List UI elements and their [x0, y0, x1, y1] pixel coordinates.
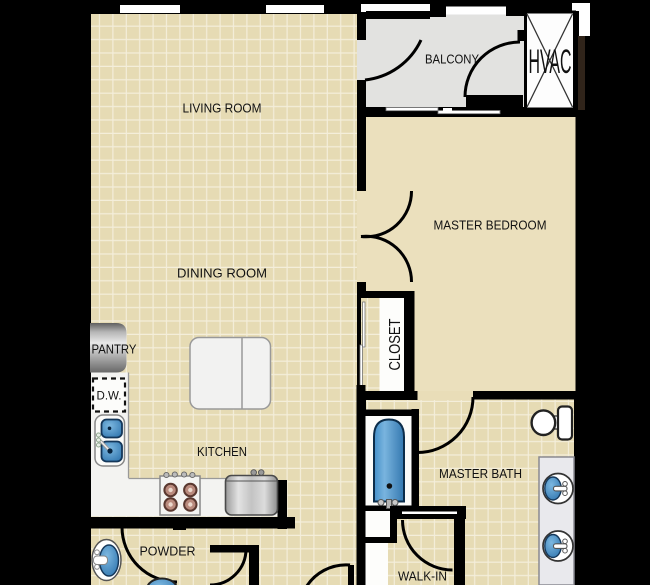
svg-text:WALK-IN: WALK-IN	[398, 569, 447, 584]
svg-text:KITCHEN: KITCHEN	[197, 444, 247, 459]
svg-text:MASTER BATH: MASTER BATH	[439, 466, 522, 481]
svg-text:CLOSET: CLOSET	[387, 318, 404, 370]
svg-text:LIVING ROOM: LIVING ROOM	[183, 101, 262, 116]
svg-text:MASTER BEDROOM: MASTER BEDROOM	[434, 218, 547, 233]
svg-text:DINING ROOM: DINING ROOM	[177, 266, 267, 281]
svg-text:HVAC: HVAC	[529, 43, 572, 81]
svg-text:POWDER: POWDER	[140, 544, 196, 559]
svg-text:PANTRY: PANTRY	[92, 342, 137, 357]
svg-text:D.W.: D.W.	[97, 391, 122, 403]
svg-text:BALCONY: BALCONY	[425, 52, 479, 67]
